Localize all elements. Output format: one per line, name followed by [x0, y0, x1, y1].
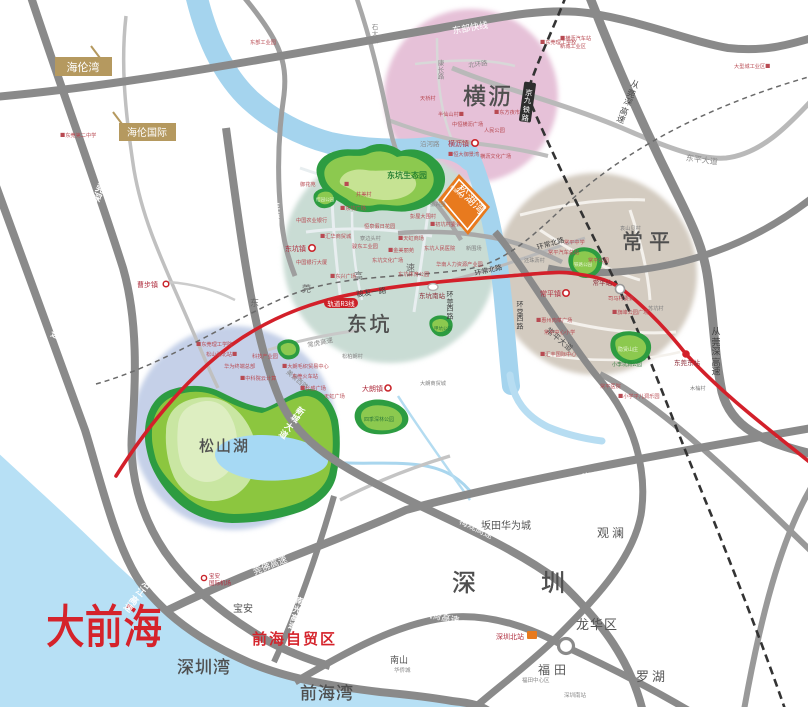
- svg-text:■横沥汽车站: ■横沥汽车站: [560, 34, 591, 42]
- svg-text:■东莞理工学院: ■东莞理工学院: [196, 340, 233, 348]
- svg-text:国际机场: 国际机场: [209, 579, 232, 587]
- svg-text:东莞东站: 东莞东站: [674, 357, 701, 367]
- svg-text:骏东工业园: 骏东工业园: [352, 242, 378, 250]
- svg-text:大朗镇: 大朗镇: [362, 384, 383, 394]
- svg-text:沿河路: 沿河路: [420, 138, 440, 148]
- svg-text:天虹广场: 天虹广场: [324, 392, 345, 400]
- svg-text:■东坑广场: ■东坑广场: [340, 204, 366, 212]
- svg-text:彭屋大围村: 彭屋大围村: [410, 212, 436, 220]
- svg-text:常平医院: 常平医院: [600, 382, 622, 390]
- svg-text:恒泉假日花园: 恒泉假日花园: [364, 222, 395, 230]
- svg-text:■东莞第二中学: ■东莞第二中学: [60, 131, 96, 139]
- svg-text:大朗商贸城: 大朗商贸城: [420, 379, 447, 387]
- svg-text:■东方夜市: ■东方夜市: [494, 108, 520, 116]
- svg-text:常平镇: 常平镇: [540, 289, 561, 299]
- svg-text:■恒大御景湾: ■恒大御景湾: [448, 150, 479, 158]
- svg-text:东: 东: [250, 296, 259, 309]
- svg-text:苏坑村: 苏坑村: [648, 304, 664, 312]
- svg-text:海伦国际: 海伦国际: [127, 124, 167, 139]
- svg-text:■惠州肉菜广场: ■惠州肉菜广场: [536, 316, 572, 324]
- svg-text:振兴围: 振兴围: [430, 200, 446, 208]
- svg-text:深圳北站: 深圳北站: [496, 632, 524, 642]
- svg-text:■: ■: [344, 181, 349, 188]
- svg-text:东坑体育公园: 东坑体育公园: [398, 270, 429, 278]
- svg-text:人民公园: 人民公园: [484, 127, 505, 134]
- svg-text:华南人力资源产业园: 华南人力资源产业园: [436, 260, 483, 268]
- svg-text:寮边头村: 寮边头村: [360, 234, 381, 242]
- svg-text:■小学平儿洞乐园: ■小学平儿洞乐园: [618, 392, 660, 400]
- svg-text:石大路: 石大路: [370, 22, 380, 44]
- svg-text:曹步镇: 曹步镇: [137, 280, 158, 290]
- svg-text:常平汽车总站: 常平汽车总站: [548, 248, 579, 256]
- svg-text:华侨城: 华侨城: [394, 666, 411, 674]
- svg-text:常平站: 常平站: [593, 277, 613, 287]
- svg-text:桔园公园: 桔园公园: [316, 196, 334, 203]
- svg-text:中国农业银行: 中国农业银行: [296, 216, 327, 224]
- svg-text:南山: 南山: [390, 653, 408, 666]
- svg-text:松山湖: 松山湖: [199, 435, 250, 456]
- svg-text:东坑镇: 东坑镇: [285, 244, 306, 254]
- svg-text:■汇丰国际中心: ■汇丰国际中心: [540, 350, 576, 358]
- svg-text:大型城工业区■: 大型城工业区■: [734, 62, 770, 70]
- svg-text:袁山贝村: 袁山贝村: [620, 224, 641, 232]
- svg-text:半仙山村■: 半仙山村■: [438, 110, 464, 118]
- svg-text:东坑南站: 东坑南站: [419, 290, 446, 300]
- svg-text:常平中学: 常平中学: [564, 238, 585, 246]
- svg-text:深圳: 深圳: [452, 563, 630, 598]
- svg-text:中国银行大厦: 中国银行大厦: [296, 258, 327, 266]
- svg-text:科技产业园: 科技产业园: [252, 352, 278, 360]
- svg-text:司马村委会: 司马村委会: [608, 294, 634, 302]
- svg-text:井美村: 井美村: [356, 190, 372, 198]
- svg-text:松柏朗村: 松柏朗村: [342, 352, 363, 360]
- svg-text:■初坑村委会: ■初坑村委会: [430, 220, 461, 228]
- svg-text:福田中心区: 福田中心区: [522, 676, 550, 684]
- svg-text:御花苑: 御花苑: [300, 180, 316, 188]
- svg-text:新城工业区: 新城工业区: [560, 42, 586, 50]
- svg-text:■中科院云计算: ■中科院云计算: [240, 374, 276, 382]
- svg-text:康长路: 康长路: [436, 58, 446, 80]
- svg-text:■汇华商贸城: ■汇华商贸城: [320, 232, 352, 240]
- svg-text:东坑生态园: 东坑生态园: [387, 170, 427, 181]
- svg-text:横沥: 横沥: [463, 77, 513, 111]
- svg-text:观澜: 观澜: [597, 524, 627, 541]
- svg-text:环常西路: 环常西路: [515, 300, 525, 330]
- svg-text:■金美丽苑: ■金美丽苑: [388, 246, 414, 254]
- svg-text:四季深林公园: 四季深林公园: [364, 416, 394, 423]
- svg-text:生态园大道: 生态园大道: [271, 200, 282, 246]
- svg-text:横沥文化广场: 横沥文化广场: [480, 152, 511, 160]
- svg-text:罗湖: 罗湖: [636, 666, 668, 685]
- svg-text:海伦湾: 海伦湾: [67, 59, 100, 75]
- svg-text:小李坑洞公园: 小李坑洞公园: [612, 361, 642, 368]
- svg-text:环莞西路: 环莞西路: [445, 290, 455, 320]
- svg-text:从莞深高速: 从莞深高速: [710, 326, 723, 376]
- svg-text:东莞火车站: 东莞火车站: [292, 372, 318, 380]
- svg-text:东坑: 东坑: [347, 308, 392, 337]
- svg-text:甲坑公园: 甲坑公园: [434, 325, 452, 332]
- svg-text:木棆村: 木棆村: [690, 384, 706, 392]
- svg-text:天桥村: 天桥村: [420, 94, 436, 102]
- svg-text:莞: 莞: [302, 282, 311, 295]
- svg-text:隐贤山庄: 隐贤山庄: [618, 346, 638, 353]
- svg-text:■长盛广场: ■长盛广场: [300, 384, 326, 392]
- svg-text:横沥镇: 横沥镇: [448, 139, 469, 149]
- svg-text:松山湖北站■: 松山湖北站■: [206, 350, 237, 358]
- svg-text:还珠沥村: 还珠沥村: [524, 256, 545, 264]
- svg-text:宝安: 宝安: [233, 600, 253, 615]
- svg-text:轨道R3线: 轨道R3线: [327, 298, 355, 308]
- svg-text:大前海: 大前海: [46, 591, 162, 657]
- svg-text:■天虹商场: ■天虹商场: [398, 234, 424, 242]
- svg-text:中恒横沥广场: 中恒横沥广场: [452, 120, 483, 128]
- svg-text:东坑人民医院: 东坑人民医院: [424, 244, 456, 252]
- svg-text:■东兴广场: ■东兴广场: [330, 272, 356, 280]
- svg-text:深圳南站: 深圳南站: [564, 691, 587, 699]
- svg-text:常平公园: 常平公园: [588, 256, 609, 264]
- svg-text:东部工业园: 东部工业园: [250, 38, 276, 46]
- svg-text:东坑文化广场: 东坑文化广场: [372, 256, 403, 264]
- svg-text:■大朗毛织贸易中心: ■大朗毛织贸易中心: [282, 362, 329, 370]
- svg-text:深圳湾: 深圳湾: [177, 653, 231, 678]
- svg-text:华为终端总部: 华为终端总部: [224, 362, 255, 370]
- svg-text:■旗峰公园广场: ■旗峰公园广场: [612, 308, 648, 316]
- svg-text:常平中心小学: 常平中心小学: [544, 328, 575, 336]
- svg-text:龙华区: 龙华区: [576, 614, 618, 633]
- svg-text:前海湾: 前海湾: [300, 679, 354, 704]
- svg-text:新围场: 新围场: [466, 244, 482, 252]
